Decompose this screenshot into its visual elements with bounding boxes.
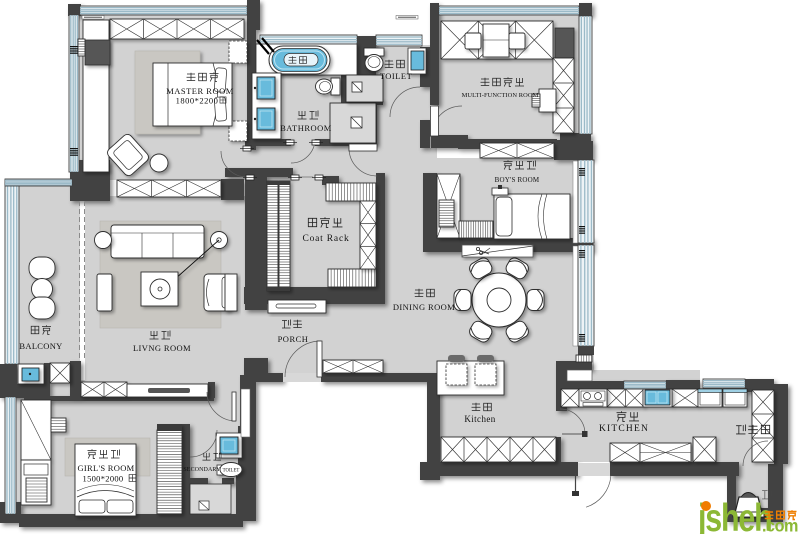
svg-text:1500*2000: 1500*2000 [83,474,124,484]
svg-text:MASTER ROOM: MASTER ROOM [166,86,234,96]
svg-text:MULTI-FUNCTION ROOM: MULTI-FUNCTION ROOM [462,92,539,99]
svg-text:BATHROOM: BATHROOM [280,123,332,133]
svg-text:Coat Rack: Coat Rack [302,234,349,244]
svg-text:DINING ROOM: DINING ROOM [393,302,455,312]
svg-text:TOILET: TOILET [223,469,240,474]
svg-text:1800*2200: 1800*2200 [176,96,219,106]
svg-text:GIRL'S ROOM: GIRL'S ROOM [77,463,134,473]
svg-text:BOY'S ROOM: BOY'S ROOM [495,176,540,184]
svg-text:Kitchen: Kitchen [464,414,495,424]
svg-text:BALCONY: BALCONY [19,341,62,351]
svg-text:KITCHEN: KITCHEN [599,424,649,434]
svg-text:TOILET: TOILET [380,71,413,81]
svg-text:LIVNG ROOM: LIVNG ROOM [133,343,191,353]
svg-text:PORCH: PORCH [278,334,309,344]
svg-text:SECONDARY: SECONDARY [183,467,221,473]
